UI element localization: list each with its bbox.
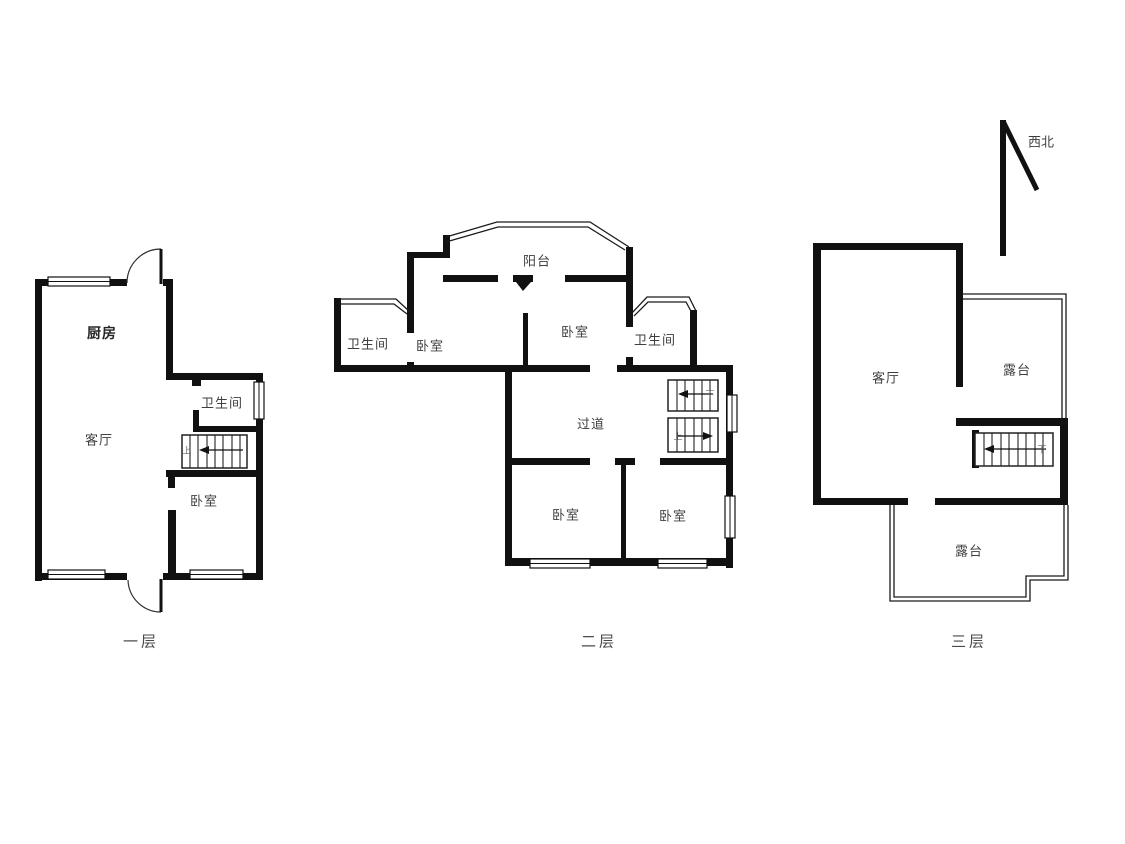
floorplan-canvas: 厨房 客厅 卫生间 卧室 一层 上 卫生间 卧室 阳台 卧室 卫生间 过道 卧室… [0,0,1125,844]
balcony-door-marker [516,282,531,291]
floor1-walls [35,279,263,581]
floor1-caption: 一层 [123,631,159,652]
room-label-bathroom-f2-right: 卫生间 [634,330,676,349]
room-label-terrace-upper: 露台 [1003,360,1031,379]
room-label-bathroom-f2-left: 卫生间 [347,334,389,353]
room-label-hallway: 过道 [577,414,605,433]
room-label-bedroom-f2-bottom-left: 卧室 [552,505,580,524]
room-label-kitchen: 厨房 [87,323,117,343]
window [658,559,707,568]
window [725,496,735,538]
room-label-living-room-f3: 客厅 [872,368,900,387]
floor1-doors [127,249,161,612]
room-label-terrace-lower: 露台 [955,541,983,560]
stair-mark-f2-down: 下 [705,388,714,401]
window [727,395,737,432]
room-label-bathroom-f1: 卫生间 [201,393,243,412]
room-label-living-room-f1: 客厅 [85,430,113,449]
floorplan-drawing [0,0,1125,844]
room-label-bedroom-f2-center: 卧室 [561,322,589,341]
compass-direction-label: 西北 [1028,132,1054,151]
stair-mark-f3: 下 [1037,443,1046,456]
window [530,559,590,568]
floor2-bay-windows [337,222,696,316]
room-label-balcony: 阳台 [523,251,551,270]
floor3-caption: 三层 [951,631,987,652]
room-label-bedroom-f1: 卧室 [190,491,218,510]
floor2-caption: 二层 [581,631,617,652]
window [48,277,110,286]
room-label-bedroom-f2-left: 卧室 [416,336,444,355]
floor1-staircase [182,435,247,468]
stair-mark-f1: 上 [182,444,191,457]
stair-mark-f2-up: 上 [673,430,682,443]
window [48,570,105,579]
room-label-bedroom-f2-bottom-right: 卧室 [659,506,687,525]
window [254,382,264,419]
window [190,570,243,579]
